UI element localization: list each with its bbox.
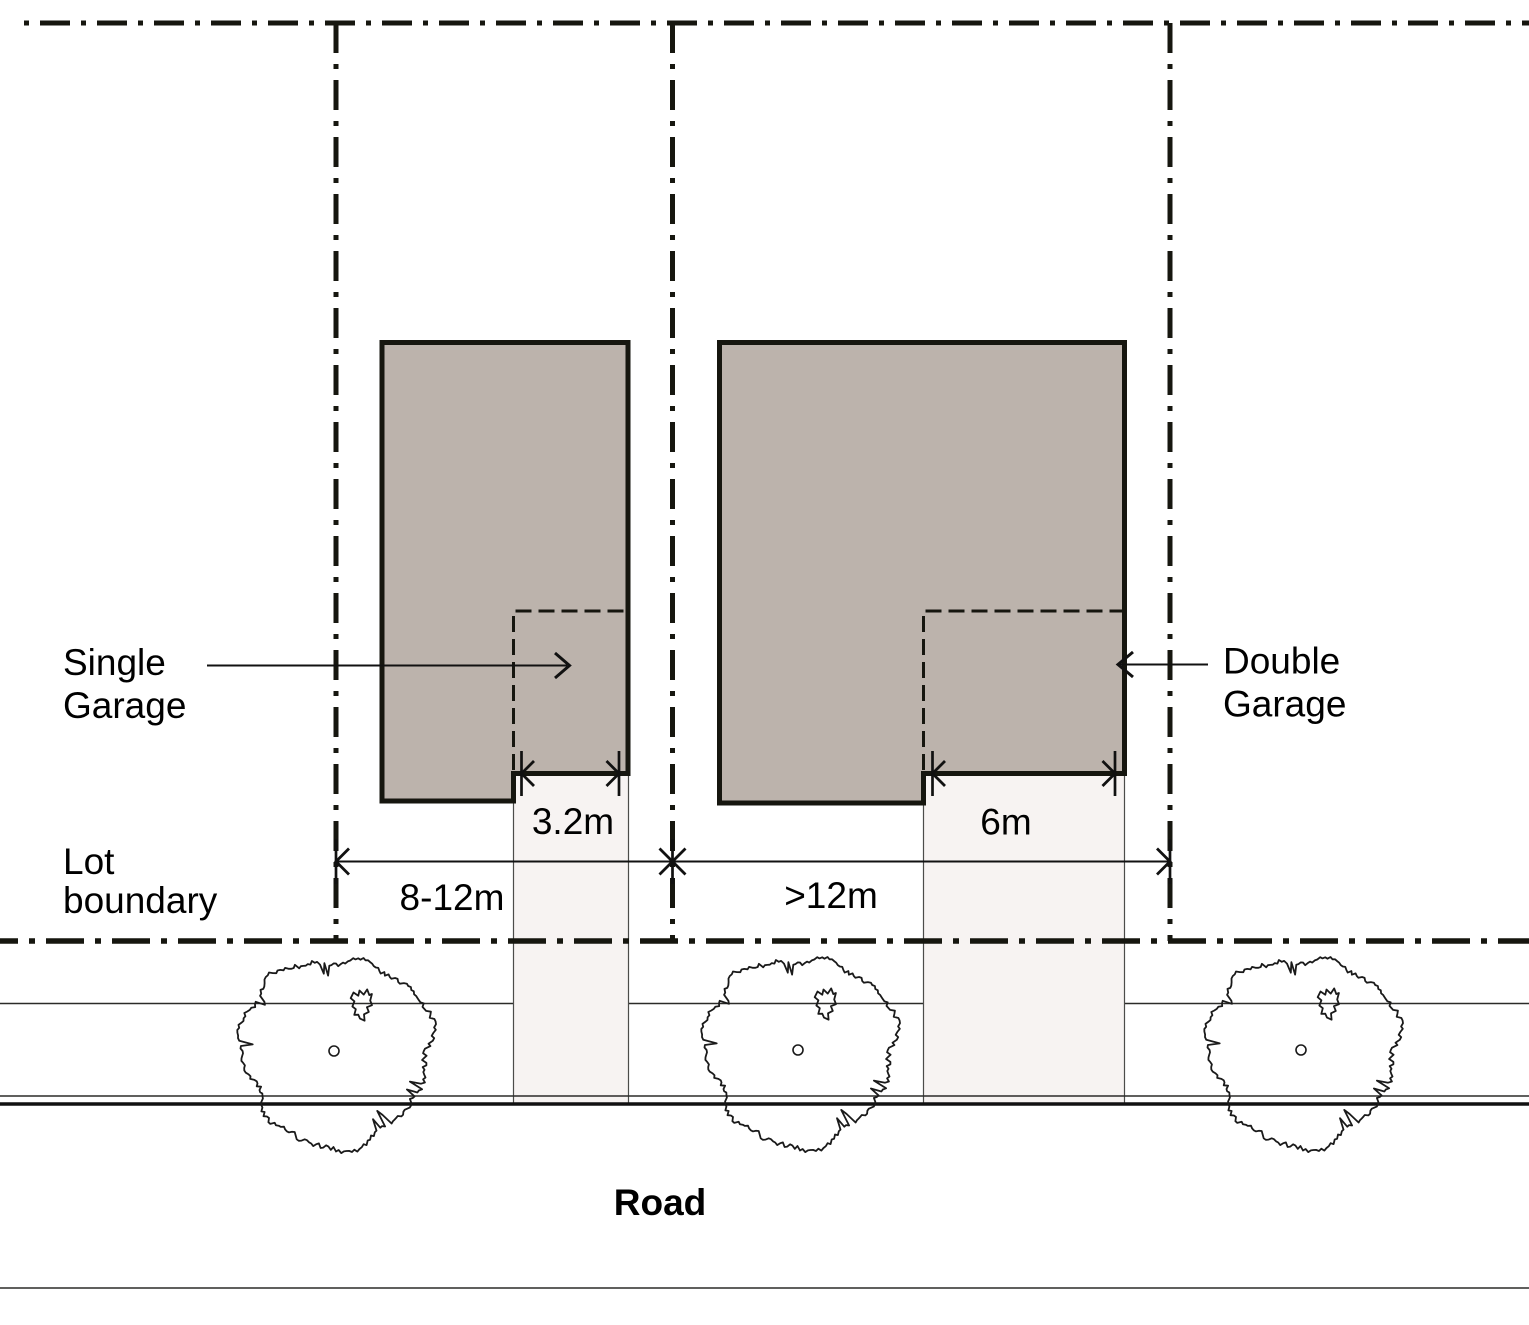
svg-text:Garage: Garage	[1223, 684, 1346, 725]
svg-text:3.2m: 3.2m	[532, 801, 614, 842]
svg-text:boundary: boundary	[63, 880, 218, 921]
svg-text:Lot: Lot	[63, 841, 115, 882]
svg-text:8-12m: 8-12m	[400, 877, 505, 918]
svg-text:6m: 6m	[980, 802, 1031, 843]
svg-text:Double: Double	[1223, 641, 1340, 682]
svg-text:Single: Single	[63, 642, 166, 683]
svg-text:Road: Road	[614, 1182, 707, 1223]
svg-text:Garage: Garage	[63, 685, 186, 726]
svg-text:>12m: >12m	[784, 875, 878, 916]
